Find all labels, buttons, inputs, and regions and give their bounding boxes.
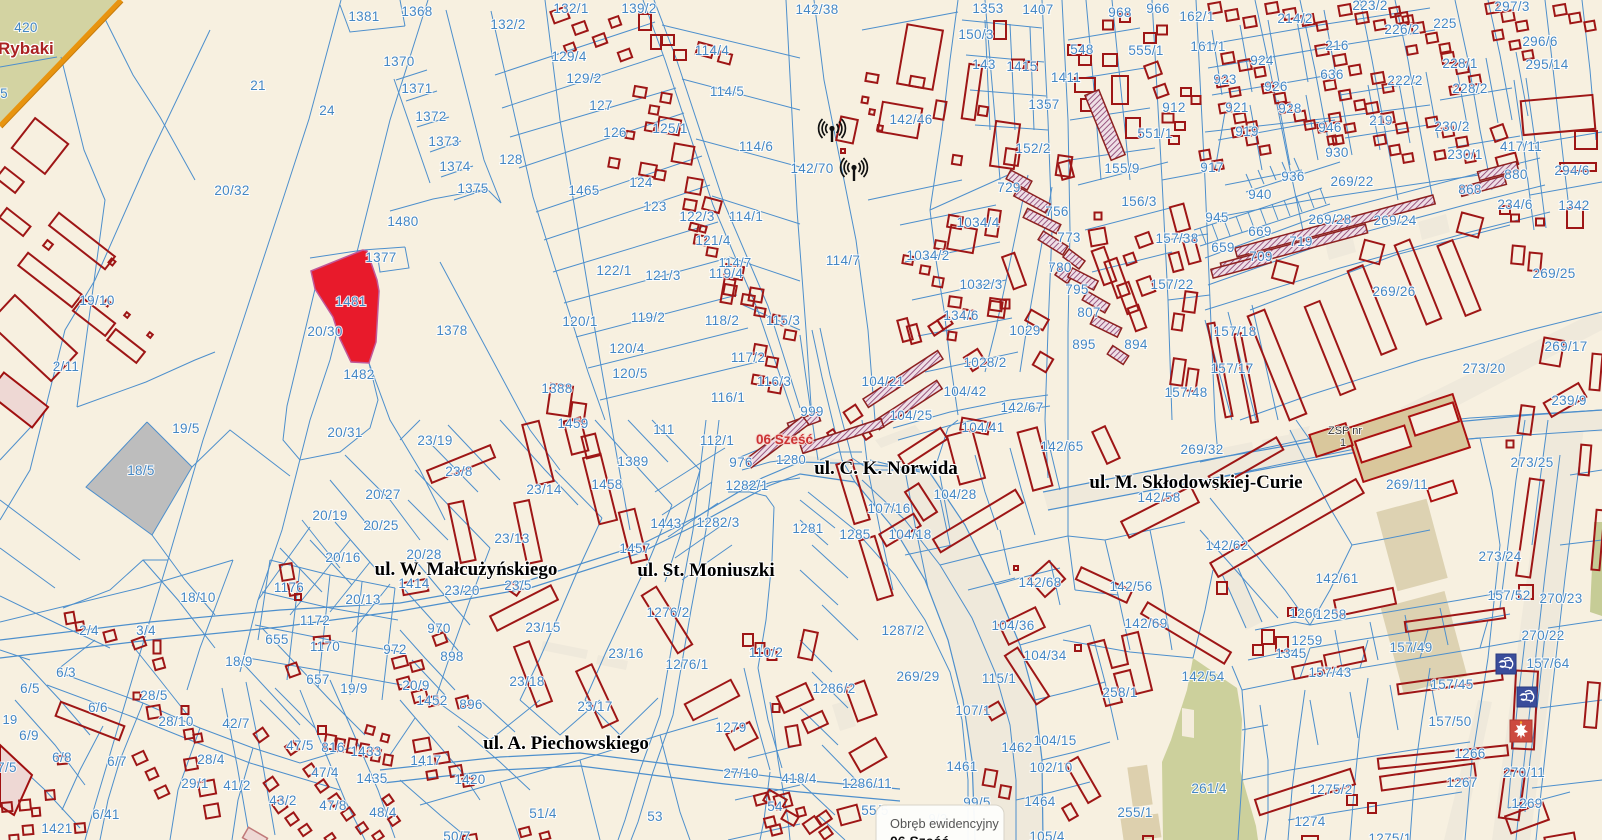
svg-text:19: 19: [2, 712, 17, 727]
svg-text:968: 968: [1108, 5, 1131, 20]
svg-text:912: 912: [1162, 100, 1185, 115]
svg-text:142/56: 142/56: [1109, 579, 1152, 594]
svg-text:1267: 1267: [1446, 775, 1477, 790]
svg-text:255/1: 255/1: [1117, 805, 1152, 820]
svg-text:6/7: 6/7: [107, 754, 127, 769]
svg-text:223/2: 223/2: [1352, 0, 1387, 13]
svg-text:773: 773: [1057, 230, 1080, 245]
svg-text:157/22: 157/22: [1150, 277, 1193, 292]
svg-text:1287/2: 1287/2: [881, 623, 924, 638]
svg-text:917: 917: [1200, 160, 1223, 175]
svg-text:1375: 1375: [457, 181, 488, 196]
svg-text:47/8: 47/8: [319, 798, 346, 813]
svg-text:970: 970: [427, 621, 450, 636]
svg-text:1415: 1415: [1006, 59, 1037, 74]
svg-text:162/1: 162/1: [1179, 9, 1214, 24]
svg-text:1461: 1461: [946, 759, 977, 774]
svg-text:104/34: 104/34: [1023, 648, 1066, 663]
svg-text:28/5: 28/5: [140, 688, 167, 703]
svg-text:7/5: 7/5: [0, 760, 17, 775]
svg-text:161/1: 161/1: [1190, 39, 1225, 54]
svg-text:1342: 1342: [1558, 198, 1589, 213]
svg-text:142/68: 142/68: [1018, 575, 1061, 590]
svg-text:1274: 1274: [1294, 814, 1325, 829]
svg-text:756: 756: [1045, 204, 1068, 219]
svg-text:1374: 1374: [439, 159, 470, 174]
svg-text:234/6: 234/6: [1497, 197, 1532, 212]
svg-text:19/9: 19/9: [340, 681, 367, 696]
svg-text:124: 124: [629, 175, 653, 190]
svg-text:729: 729: [997, 180, 1020, 195]
svg-text:417/11: 417/11: [1500, 139, 1542, 154]
svg-text:120/5: 120/5: [612, 366, 647, 381]
svg-text:142/67: 142/67: [1000, 400, 1043, 415]
svg-text:669: 669: [1248, 224, 1271, 239]
svg-text:104/36: 104/36: [991, 618, 1034, 633]
svg-text:142/65: 142/65: [1040, 439, 1083, 454]
svg-text:114/4: 114/4: [695, 43, 729, 58]
svg-text:116/3: 116/3: [757, 374, 791, 389]
svg-text:270/23: 270/23: [1539, 591, 1582, 606]
svg-text:655: 655: [265, 632, 288, 647]
svg-text:06 Sześć: 06 Sześć: [756, 432, 814, 447]
svg-text:107/16: 107/16: [867, 501, 910, 516]
svg-text:115/1: 115/1: [982, 671, 1016, 686]
svg-text:102/10: 102/10: [1029, 760, 1072, 775]
svg-text:114/1: 114/1: [729, 209, 763, 224]
svg-text:6/8: 6/8: [52, 750, 72, 765]
svg-text:104/21: 104/21: [861, 374, 904, 389]
svg-text:132/2: 132/2: [490, 17, 525, 32]
svg-text:1353: 1353: [972, 1, 1003, 16]
svg-text:946: 946: [1318, 120, 1341, 135]
svg-text:1389: 1389: [617, 454, 648, 469]
svg-text:157/50: 157/50: [1428, 714, 1471, 729]
svg-text:780: 780: [1048, 260, 1071, 275]
svg-text:157/52: 157/52: [1487, 588, 1530, 603]
svg-text:894: 894: [1124, 337, 1148, 352]
svg-text:1411: 1411: [1051, 70, 1081, 85]
svg-text:121/4: 121/4: [695, 233, 730, 248]
svg-text:23/19: 23/19: [417, 433, 452, 448]
svg-text:50/7: 50/7: [443, 829, 470, 840]
svg-text:48/4: 48/4: [369, 805, 397, 820]
svg-text:273/25: 273/25: [1510, 455, 1553, 470]
svg-text:19/10: 19/10: [79, 293, 114, 308]
svg-text:1435: 1435: [356, 771, 387, 786]
svg-text:1034/4: 1034/4: [956, 215, 999, 230]
svg-text:636: 636: [1320, 67, 1343, 82]
svg-text:6/9: 6/9: [19, 728, 39, 743]
svg-text:28/4: 28/4: [197, 752, 225, 767]
svg-text:23/14: 23/14: [526, 482, 561, 497]
svg-text:18/5: 18/5: [127, 463, 154, 478]
svg-text:6/6: 6/6: [88, 700, 108, 715]
svg-text:157/49: 157/49: [1389, 640, 1432, 655]
svg-text:1357: 1357: [1028, 97, 1059, 112]
svg-text:107/1: 107/1: [955, 703, 990, 718]
svg-text:122/1: 122/1: [596, 263, 631, 278]
svg-text:117/2: 117/2: [731, 350, 765, 365]
svg-text:923: 923: [1213, 72, 1236, 87]
svg-text:1457: 1457: [619, 541, 650, 556]
svg-text:294/6: 294/6: [1554, 163, 1589, 178]
svg-text:ZSP nr: ZSP nr: [1328, 425, 1362, 437]
svg-text:126: 126: [603, 125, 626, 140]
svg-text:1172: 1172: [300, 613, 330, 628]
svg-text:ul. M. Skłodowskiej-Curie: ul. M. Skłodowskiej-Curie: [1089, 472, 1302, 493]
svg-text:1377: 1377: [365, 250, 396, 265]
svg-text:966: 966: [1146, 1, 1169, 16]
svg-text:222/2: 222/2: [1387, 73, 1422, 88]
svg-text:142/61: 142/61: [1315, 571, 1358, 586]
svg-text:114/7: 114/7: [718, 255, 751, 270]
svg-text:120/1: 120/1: [562, 314, 597, 329]
svg-text:06 Sześć: 06 Sześć: [890, 833, 949, 840]
svg-text:104/28: 104/28: [933, 487, 976, 502]
svg-text:112/1: 112/1: [700, 433, 734, 448]
svg-text:269/29: 269/29: [896, 669, 939, 684]
svg-text:1275/1: 1275/1: [1368, 831, 1411, 840]
svg-text:123: 123: [643, 199, 666, 214]
svg-text:157/38: 157/38: [1155, 231, 1198, 246]
svg-text:134/6: 134/6: [943, 308, 978, 323]
svg-text:120/4: 120/4: [609, 341, 644, 356]
svg-text:6/41: 6/41: [92, 807, 119, 822]
svg-text:1370: 1370: [383, 54, 414, 69]
svg-text:114/7: 114/7: [826, 253, 860, 268]
svg-text:1: 1: [1340, 437, 1346, 449]
svg-text:29/1: 29/1: [181, 776, 208, 791]
svg-text:868: 868: [1458, 182, 1481, 197]
svg-text:155/9: 155/9: [1104, 161, 1139, 176]
svg-text:230/1: 230/1: [1447, 147, 1482, 162]
svg-text:ul. St. Moniuszki: ul. St. Moniuszki: [637, 560, 774, 581]
svg-text:295/14: 295/14: [1525, 57, 1568, 72]
svg-text:118/2: 118/2: [705, 313, 739, 328]
svg-text:104/25: 104/25: [889, 408, 932, 423]
svg-text:898: 898: [440, 649, 463, 664]
svg-text:6/3: 6/3: [56, 665, 76, 680]
svg-text:418/4: 418/4: [781, 771, 816, 786]
svg-text:225: 225: [1433, 16, 1456, 31]
svg-text:239/9: 239/9: [1551, 393, 1586, 408]
svg-text:880: 880: [1504, 167, 1527, 182]
svg-text:43/2: 43/2: [269, 793, 296, 808]
svg-text:219: 219: [1369, 113, 1392, 128]
svg-text:1029: 1029: [1009, 323, 1040, 338]
svg-text:795: 795: [1065, 282, 1088, 297]
svg-text:142/70: 142/70: [790, 161, 833, 176]
svg-text:940: 940: [1248, 187, 1271, 202]
svg-text:27/10: 27/10: [723, 766, 758, 781]
svg-text:261/4: 261/4: [1191, 781, 1226, 796]
svg-text:150/3: 150/3: [958, 27, 993, 42]
svg-text:1034/2: 1034/2: [906, 248, 949, 263]
svg-text:1378: 1378: [436, 323, 467, 338]
svg-text:139/2: 139/2: [621, 1, 656, 16]
svg-text:273/20: 273/20: [1462, 361, 1505, 376]
svg-text:21: 21: [250, 78, 266, 93]
svg-text:23/15: 23/15: [525, 620, 560, 635]
svg-text:128: 128: [499, 152, 522, 167]
svg-text:1372: 1372: [415, 109, 446, 124]
svg-text:42/7: 42/7: [222, 716, 249, 731]
svg-text:1276/1: 1276/1: [665, 657, 708, 672]
svg-text:110/2: 110/2: [749, 645, 783, 660]
svg-text:2/11: 2/11: [53, 359, 79, 374]
svg-text:921: 921: [1225, 100, 1248, 115]
svg-text:1286/2: 1286/2: [812, 681, 855, 696]
svg-text:111: 111: [653, 422, 674, 437]
svg-text:807: 807: [1077, 305, 1100, 320]
svg-text:896: 896: [459, 697, 482, 712]
svg-text:1032/3: 1032/3: [959, 277, 1002, 292]
svg-text:24: 24: [319, 103, 335, 118]
svg-text:142/69: 142/69: [1124, 616, 1167, 631]
svg-text:269/28: 269/28: [1308, 212, 1351, 227]
svg-text:152/2: 152/2: [1015, 141, 1050, 156]
svg-text:132/1: 132/1: [553, 1, 588, 16]
svg-text:23/16: 23/16: [608, 646, 643, 661]
svg-text:1266: 1266: [1454, 746, 1485, 761]
svg-text:551/1: 551/1: [1137, 126, 1172, 141]
svg-text:1282/1: 1282/1: [725, 478, 768, 493]
svg-text:20/9: 20/9: [402, 678, 429, 693]
svg-text:1280: 1280: [776, 452, 806, 467]
svg-text:1279: 1279: [715, 720, 746, 735]
svg-text:659: 659: [1211, 240, 1234, 255]
svg-text:230/2: 230/2: [1434, 119, 1469, 134]
svg-text:23/18: 23/18: [509, 674, 544, 689]
svg-text:18/9: 18/9: [225, 654, 252, 669]
svg-text:1176: 1176: [274, 580, 304, 595]
svg-text:1028/2: 1028/2: [963, 355, 1006, 370]
svg-text:1459: 1459: [557, 416, 588, 431]
svg-text:143: 143: [972, 57, 995, 72]
svg-text:157/43: 157/43: [1308, 665, 1351, 680]
svg-text:53: 53: [647, 809, 663, 824]
svg-text:157/18: 157/18: [1213, 324, 1256, 339]
svg-text:273/24: 273/24: [1478, 549, 1521, 564]
svg-text:142/38: 142/38: [795, 2, 838, 17]
svg-text:105/4: 105/4: [1029, 829, 1064, 840]
svg-text:6/5: 6/5: [20, 681, 40, 696]
svg-text:20/27: 20/27: [365, 487, 400, 502]
svg-text:23/13: 23/13: [494, 531, 529, 546]
svg-text:269/24: 269/24: [1373, 213, 1416, 228]
svg-text:157/48: 157/48: [1164, 385, 1207, 400]
svg-text:121/3: 121/3: [645, 268, 680, 283]
svg-text:Rybaki: Rybaki: [0, 39, 54, 58]
svg-text:20/32: 20/32: [214, 183, 249, 198]
svg-text:104/42: 104/42: [943, 384, 986, 399]
svg-text:20/31: 20/31: [327, 425, 362, 440]
svg-text:1170: 1170: [310, 639, 340, 654]
svg-text:816: 816: [321, 740, 344, 755]
svg-text:156/3: 156/3: [1121, 194, 1156, 209]
svg-text:1345: 1345: [1275, 646, 1306, 661]
svg-text:976: 976: [729, 455, 752, 470]
svg-text:926: 926: [1264, 79, 1287, 94]
svg-text:1371: 1371: [401, 81, 432, 96]
svg-text:1420: 1420: [454, 772, 485, 787]
svg-text:269/26: 269/26: [1372, 284, 1415, 299]
svg-text:1388: 1388: [541, 381, 572, 396]
svg-text:23/5: 23/5: [504, 578, 531, 593]
svg-text:127: 127: [589, 98, 612, 113]
svg-text:709: 709: [1249, 249, 1272, 264]
svg-text:1381: 1381: [348, 9, 379, 24]
svg-text:157/45: 157/45: [1430, 677, 1473, 692]
svg-text:28/10: 28/10: [158, 714, 193, 729]
svg-text:228/2: 228/2: [1452, 81, 1487, 96]
svg-text:1281: 1281: [792, 521, 823, 536]
svg-text:20/16: 20/16: [325, 550, 360, 565]
svg-text:157/64: 157/64: [1526, 656, 1569, 671]
svg-text:269/11: 269/11: [1386, 477, 1428, 492]
svg-text:ul. C. K. Norwida: ul. C. K. Norwida: [814, 458, 958, 479]
svg-text:548: 548: [1070, 42, 1093, 57]
svg-text:945: 945: [1205, 210, 1228, 225]
svg-text:ul. W. Małcużyńskiego: ul. W. Małcużyńskiego: [375, 559, 558, 580]
svg-text:1443: 1443: [650, 516, 681, 531]
svg-text:51/4: 51/4: [529, 806, 557, 821]
svg-text:1465: 1465: [568, 183, 599, 198]
svg-text:104/18: 104/18: [888, 527, 931, 542]
svg-text:1481: 1481: [335, 294, 366, 309]
svg-text:142/54: 142/54: [1181, 669, 1224, 684]
svg-text:157/17: 157/17: [1210, 361, 1253, 376]
svg-text:115/3: 115/3: [766, 313, 800, 328]
svg-text:1480: 1480: [387, 214, 418, 229]
svg-text:258/1: 258/1: [1102, 685, 1137, 700]
svg-text:114/5: 114/5: [710, 84, 744, 99]
svg-text:657: 657: [306, 672, 329, 687]
svg-text:114/6: 114/6: [739, 139, 773, 154]
svg-text:270/22: 270/22: [1521, 628, 1564, 643]
svg-text:23/17: 23/17: [577, 699, 612, 714]
svg-text:19/5: 19/5: [172, 421, 199, 436]
svg-text:2/4: 2/4: [79, 623, 99, 638]
svg-text:216: 216: [1325, 38, 1348, 53]
svg-text:20/19: 20/19: [312, 508, 347, 523]
svg-text:269/32: 269/32: [1180, 442, 1223, 457]
svg-text:142/62: 142/62: [1205, 538, 1248, 553]
svg-text:23/20: 23/20: [444, 583, 479, 598]
svg-text:296/6: 296/6: [1522, 34, 1557, 49]
svg-text:23/8: 23/8: [445, 464, 472, 479]
svg-text:1285: 1285: [839, 527, 870, 542]
svg-text:1269: 1269: [1511, 796, 1542, 811]
svg-text:3/4: 3/4: [136, 623, 156, 638]
svg-text:214/2: 214/2: [1277, 11, 1312, 26]
svg-text:54: 54: [767, 799, 783, 814]
svg-text:1462: 1462: [1001, 740, 1032, 755]
svg-text:20/25: 20/25: [363, 518, 398, 533]
svg-text:297/3: 297/3: [1494, 0, 1529, 14]
svg-text:936: 936: [1281, 169, 1304, 184]
svg-text:47/4: 47/4: [311, 765, 339, 780]
svg-text:1433: 1433: [350, 744, 381, 759]
svg-text:228/1: 228/1: [1442, 56, 1477, 71]
svg-text:5: 5: [0, 86, 8, 101]
svg-text:125/1: 125/1: [652, 121, 687, 136]
svg-text:104/15: 104/15: [1033, 733, 1076, 748]
svg-text:972: 972: [383, 642, 406, 657]
svg-text:ul. A. Piechowskiego: ul. A. Piechowskiego: [483, 733, 649, 754]
svg-text:47/5: 47/5: [286, 738, 313, 753]
svg-text:1282/3: 1282/3: [696, 515, 739, 530]
svg-text:20/13: 20/13: [345, 592, 380, 607]
svg-text:1286/11: 1286/11: [842, 776, 892, 791]
svg-text:1275/2: 1275/2: [1309, 782, 1352, 797]
svg-text:1464: 1464: [1024, 794, 1055, 809]
svg-text:1421: 1421: [41, 821, 72, 836]
svg-text:104/41: 104/41: [961, 420, 1004, 435]
svg-text:1373: 1373: [428, 134, 459, 149]
svg-text:930: 930: [1325, 145, 1348, 160]
svg-text:142/46: 142/46: [889, 112, 932, 127]
svg-text:924: 924: [1250, 53, 1274, 68]
svg-text:129/4: 129/4: [551, 49, 586, 64]
svg-text:129/2: 129/2: [566, 71, 601, 86]
svg-text:1458: 1458: [591, 477, 622, 492]
svg-text:928: 928: [1278, 101, 1301, 116]
svg-text:895: 895: [1072, 337, 1095, 352]
svg-text:269/25: 269/25: [1532, 266, 1575, 281]
svg-text:269/22: 269/22: [1330, 174, 1373, 189]
svg-text:1417: 1417: [410, 753, 441, 768]
svg-text:999: 999: [800, 404, 823, 419]
svg-text:270/11: 270/11: [1503, 765, 1545, 780]
svg-text:1482: 1482: [343, 367, 374, 382]
svg-text:41/2: 41/2: [223, 778, 250, 793]
svg-text:116/1: 116/1: [711, 390, 745, 405]
svg-text:420: 420: [14, 20, 37, 35]
svg-text:119/2: 119/2: [631, 310, 665, 325]
svg-text:1276/2: 1276/2: [646, 605, 689, 620]
svg-text:1452: 1452: [416, 693, 447, 708]
svg-text:1258: 1258: [1315, 607, 1346, 622]
svg-text:719: 719: [1289, 234, 1312, 249]
svg-text:269/17: 269/17: [1544, 339, 1587, 354]
svg-text:20/30: 20/30: [307, 324, 342, 339]
svg-text:226/2: 226/2: [1384, 22, 1419, 37]
svg-text:919: 919: [1235, 124, 1258, 139]
svg-text:555/1: 555/1: [1128, 43, 1163, 58]
svg-text:Obręb ewidencyjny: Obręb ewidencyjny: [890, 816, 999, 831]
svg-text:18/10: 18/10: [180, 590, 215, 605]
svg-text:1368: 1368: [401, 4, 432, 19]
svg-text:122/3: 122/3: [679, 209, 714, 224]
svg-text:1407: 1407: [1022, 2, 1053, 17]
